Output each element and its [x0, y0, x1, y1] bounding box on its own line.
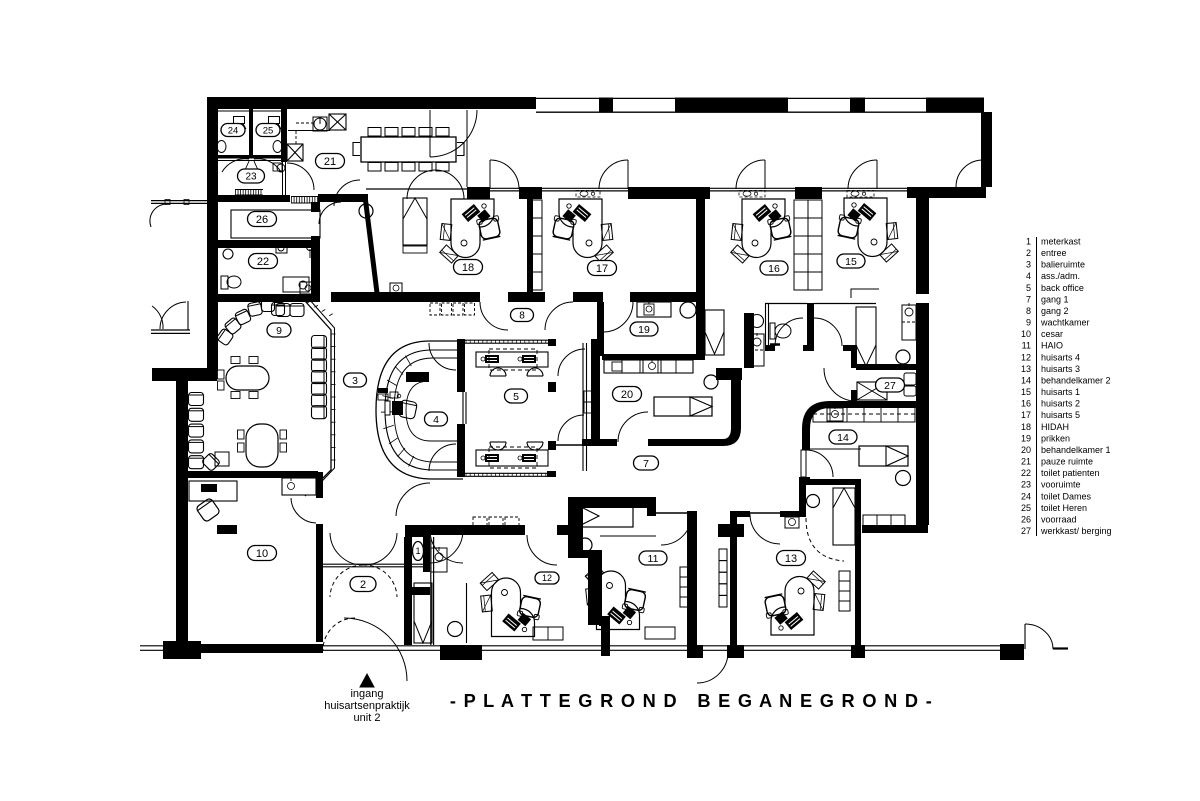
svg-text:15: 15 — [845, 256, 857, 268]
svg-text:23: 23 — [245, 172, 257, 183]
svg-text:ingang: ingang — [350, 688, 383, 700]
svg-text:gang 1: gang 1 — [1041, 294, 1069, 304]
svg-text:huisarts 3: huisarts 3 — [1041, 364, 1080, 374]
svg-text:huisarts 5: huisarts 5 — [1041, 410, 1080, 420]
svg-text:behandelkamer 1: behandelkamer 1 — [1041, 445, 1111, 455]
svg-text:back office: back office — [1041, 283, 1084, 293]
svg-text:huisarts 4: huisarts 4 — [1041, 352, 1080, 362]
svg-text:pauze ruimte: pauze ruimte — [1041, 457, 1093, 467]
svg-text:meterkast: meterkast — [1041, 237, 1081, 247]
svg-text:13: 13 — [1021, 364, 1031, 374]
svg-text:2: 2 — [360, 579, 366, 591]
svg-text:toilet Heren: toilet Heren — [1041, 503, 1087, 513]
svg-text:entree: entree — [1041, 248, 1067, 258]
svg-text:7: 7 — [643, 458, 649, 470]
svg-text:10: 10 — [1021, 329, 1031, 339]
svg-text:8: 8 — [519, 311, 525, 322]
svg-text:12: 12 — [542, 573, 552, 583]
svg-text:25: 25 — [1021, 503, 1031, 513]
svg-text:vooruimte: vooruimte — [1041, 480, 1081, 490]
svg-text:20: 20 — [621, 389, 633, 401]
svg-text:cesar: cesar — [1041, 329, 1063, 339]
svg-text:1: 1 — [415, 546, 420, 556]
svg-text:huisarts 2: huisarts 2 — [1041, 399, 1080, 409]
svg-text:14: 14 — [1021, 375, 1031, 385]
svg-text:25: 25 — [263, 125, 274, 136]
svg-text:10: 10 — [256, 548, 268, 560]
svg-text:HAIO: HAIO — [1041, 341, 1063, 351]
svg-text:27: 27 — [1021, 526, 1031, 536]
svg-text:wachtkamer: wachtkamer — [1040, 318, 1090, 328]
svg-text:20: 20 — [1021, 445, 1031, 455]
svg-text:5: 5 — [513, 391, 519, 403]
svg-text:werkkast/ berging: werkkast/ berging — [1040, 526, 1112, 536]
svg-text:HIDAH: HIDAH — [1041, 422, 1069, 432]
svg-text:7: 7 — [1026, 294, 1031, 304]
svg-text:22: 22 — [1021, 468, 1031, 478]
svg-text:5: 5 — [1026, 283, 1031, 293]
svg-text:16: 16 — [768, 263, 780, 275]
svg-text:gang 2: gang 2 — [1041, 306, 1069, 316]
svg-text:9: 9 — [276, 325, 282, 337]
svg-text:toilet Dames: toilet Dames — [1041, 491, 1092, 501]
svg-text:21: 21 — [1021, 457, 1031, 467]
svg-text:23: 23 — [1021, 480, 1031, 490]
svg-text:balieruimte: balieruimte — [1041, 260, 1085, 270]
svg-text:11: 11 — [648, 553, 659, 565]
svg-text:voorraad: voorraad — [1041, 514, 1077, 524]
svg-text:24: 24 — [228, 125, 239, 136]
svg-text:13: 13 — [785, 553, 797, 565]
svg-text:14: 14 — [837, 432, 849, 444]
svg-text:2: 2 — [1026, 248, 1031, 258]
svg-text:26: 26 — [1021, 514, 1031, 524]
svg-text:12: 12 — [1021, 352, 1031, 362]
svg-text:15: 15 — [1021, 387, 1031, 397]
svg-text:27: 27 — [884, 380, 896, 392]
svg-text:21: 21 — [324, 156, 336, 168]
svg-text:toilet patienten: toilet patienten — [1041, 468, 1100, 478]
svg-text:1: 1 — [1026, 237, 1031, 247]
svg-text:3: 3 — [352, 375, 358, 387]
svg-text:18: 18 — [1021, 422, 1031, 432]
svg-text:16: 16 — [1021, 399, 1031, 409]
svg-text:behandelkamer 2: behandelkamer 2 — [1041, 375, 1111, 385]
svg-text:26: 26 — [256, 214, 268, 226]
svg-text:3: 3 — [1026, 260, 1031, 270]
svg-text:19: 19 — [638, 324, 650, 336]
svg-text:unit 2: unit 2 — [354, 712, 381, 724]
svg-text:17: 17 — [1021, 410, 1031, 420]
svg-text:19: 19 — [1021, 433, 1031, 443]
svg-text:ass./adm.: ass./adm. — [1041, 271, 1080, 281]
svg-text:huisarts 1: huisarts 1 — [1041, 387, 1080, 397]
svg-text:17: 17 — [596, 263, 608, 275]
svg-text:18: 18 — [462, 262, 474, 274]
svg-text:8: 8 — [1026, 306, 1031, 316]
svg-text:4: 4 — [1026, 271, 1031, 281]
svg-text:9: 9 — [1026, 318, 1031, 328]
svg-text:24: 24 — [1021, 491, 1031, 501]
svg-text:prikken: prikken — [1041, 433, 1070, 443]
svg-text:4: 4 — [433, 414, 439, 426]
svg-text:- P L A T T E G R O N D B E G: - P L A T T E G R O N D B E G A N E G R … — [450, 691, 933, 711]
svg-text:11: 11 — [1022, 341, 1031, 351]
svg-text:huisartsenpraktijk: huisartsenpraktijk — [324, 700, 410, 712]
svg-text:22: 22 — [257, 256, 269, 268]
